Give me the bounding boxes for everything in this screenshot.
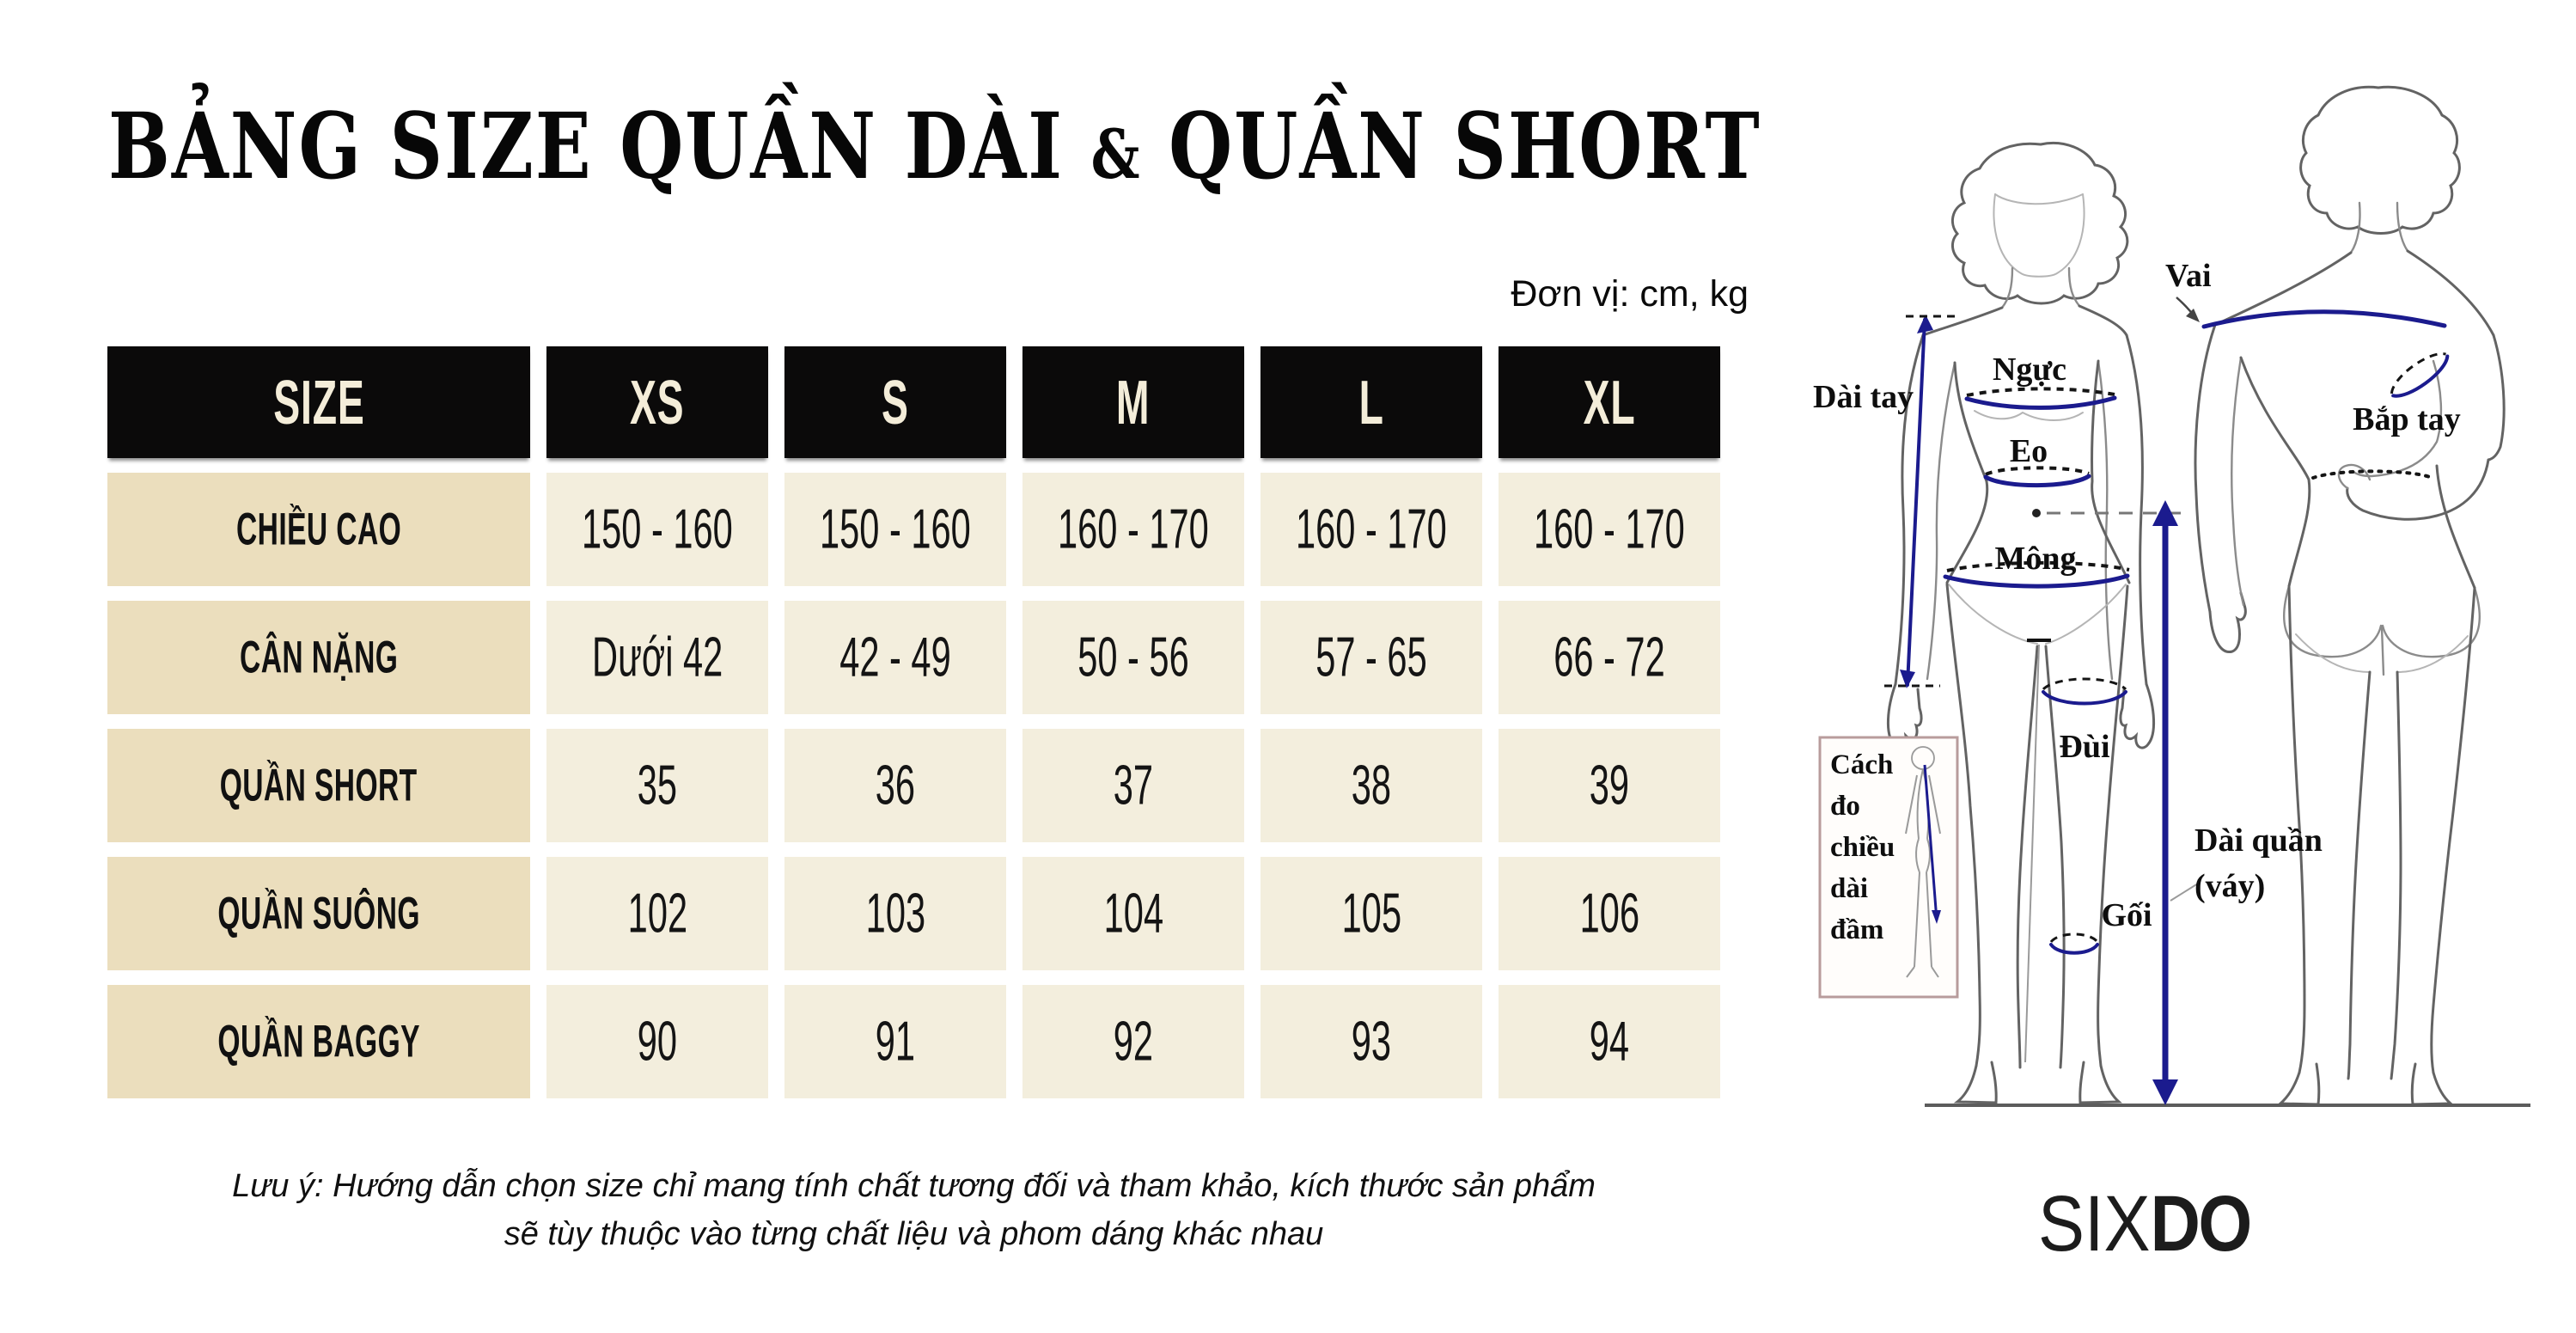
footnote: Lưu ý: Hướng dẫn chọn size chỉ mang tính… [107, 1162, 1720, 1258]
dai-quan-label-line2: (váy) [2194, 868, 2265, 904]
table-cell: 92 [1022, 985, 1244, 1098]
table-cell: 160 - 170 [1499, 473, 1720, 586]
sixdo-logo: SIXDO [2038, 1184, 2250, 1263]
back-figure-sketch [2195, 87, 2504, 1104]
footnote-line-2: sẽ tùy thuộc vào từng chất liệu và phom … [107, 1210, 1720, 1258]
table-cell: 36 [784, 729, 1006, 842]
size-table: SIZE XS S M L XL CHIỀU CAO 150 - 160 150… [107, 346, 1720, 1098]
page-title: BẢNG SIZE QUẦN DÀI & QUẦN SHORT [108, 101, 1761, 193]
column-header-l: L [1261, 346, 1482, 458]
table-cell: 160 - 170 [1261, 473, 1482, 586]
table-cell: 160 - 170 [1022, 473, 1244, 586]
row-label-quan-suong: QUẦN SUÔNG [107, 857, 530, 970]
row-label-can-nang: CÂN NẶNG [107, 601, 530, 714]
dai-tay-label: Dài tay [1813, 379, 1914, 415]
table-cell: 94 [1499, 985, 1720, 1098]
eo-label: Eo [2010, 433, 2048, 469]
table-cell: 37 [1022, 729, 1244, 842]
table-cell: 93 [1261, 985, 1482, 1098]
footnote-line-1: Lưu ý: Hướng dẫn chọn size chỉ mang tính… [107, 1162, 1720, 1210]
table-cell: 105 [1261, 857, 1482, 970]
column-header-xl: XL [1499, 346, 1720, 458]
table-cell: 102 [546, 857, 768, 970]
row-label-quan-short: QUẦN SHORT [107, 729, 530, 842]
dress-length-inset: Cách đo chiều dài đầm [1820, 737, 1957, 997]
page-title-part2: QUẦN SHORT [1142, 93, 1761, 200]
column-header-m: M [1022, 346, 1244, 458]
table-cell: 103 [784, 857, 1006, 970]
table-cell: 57 - 65 [1261, 601, 1482, 714]
table-cell: 91 [784, 985, 1006, 1098]
table-cell: 150 - 160 [784, 473, 1006, 586]
inset-label-line4: dài [1830, 873, 1868, 904]
table-cell: Dưới 42 [546, 601, 768, 714]
sixdo-logo-six: SIX [2038, 1180, 2151, 1268]
row-label-quan-baggy: QUẦN BAGGY [107, 985, 530, 1098]
dui-label: Đùi [2059, 729, 2109, 765]
sixdo-logo-do: DO [2151, 1180, 2250, 1268]
column-header-size: SIZE [107, 346, 530, 458]
body-measurement-diagram: Vai Dài tay Ngực Eo Mông Đùi Gối Bắp tay… [1796, 77, 2569, 1203]
table-cell: 66 - 72 [1499, 601, 1720, 714]
dai-quan-label-line1: Dài quần [2194, 822, 2323, 859]
table-cell: 42 - 49 [784, 601, 1006, 714]
column-header-s: S [784, 346, 1006, 458]
vai-label: Vai [2165, 258, 2212, 294]
inset-label-line1: Cách [1830, 749, 1893, 780]
table-cell: 39 [1499, 729, 1720, 842]
table-cell: 50 - 56 [1022, 601, 1244, 714]
unit-note: Đơn vị: cm, kg [1511, 273, 1749, 315]
row-label-chieu-cao: CHIỀU CAO [107, 473, 530, 586]
nguc-label: Ngực [1993, 352, 2066, 388]
table-cell: 90 [546, 985, 768, 1098]
table-cell: 106 [1499, 857, 1720, 970]
mong-label: Mông [1995, 541, 2077, 577]
table-cell: 38 [1261, 729, 1482, 842]
page-title-part1: BẢNG SIZE QUẦN DÀI [108, 93, 1091, 200]
table-cell: 150 - 160 [546, 473, 768, 586]
inset-label-line2: đo [1830, 791, 1860, 822]
inset-label-line5: đầm [1830, 914, 1883, 945]
table-cell: 104 [1022, 857, 1244, 970]
bap-tay-label: Bắp tay [2353, 401, 2461, 437]
page-title-ampersand: & [1091, 114, 1142, 194]
column-header-xs: XS [546, 346, 768, 458]
goi-label: Gối [2101, 897, 2152, 933]
table-cell: 35 [546, 729, 768, 842]
inset-label-line3: chiều [1830, 832, 1895, 863]
